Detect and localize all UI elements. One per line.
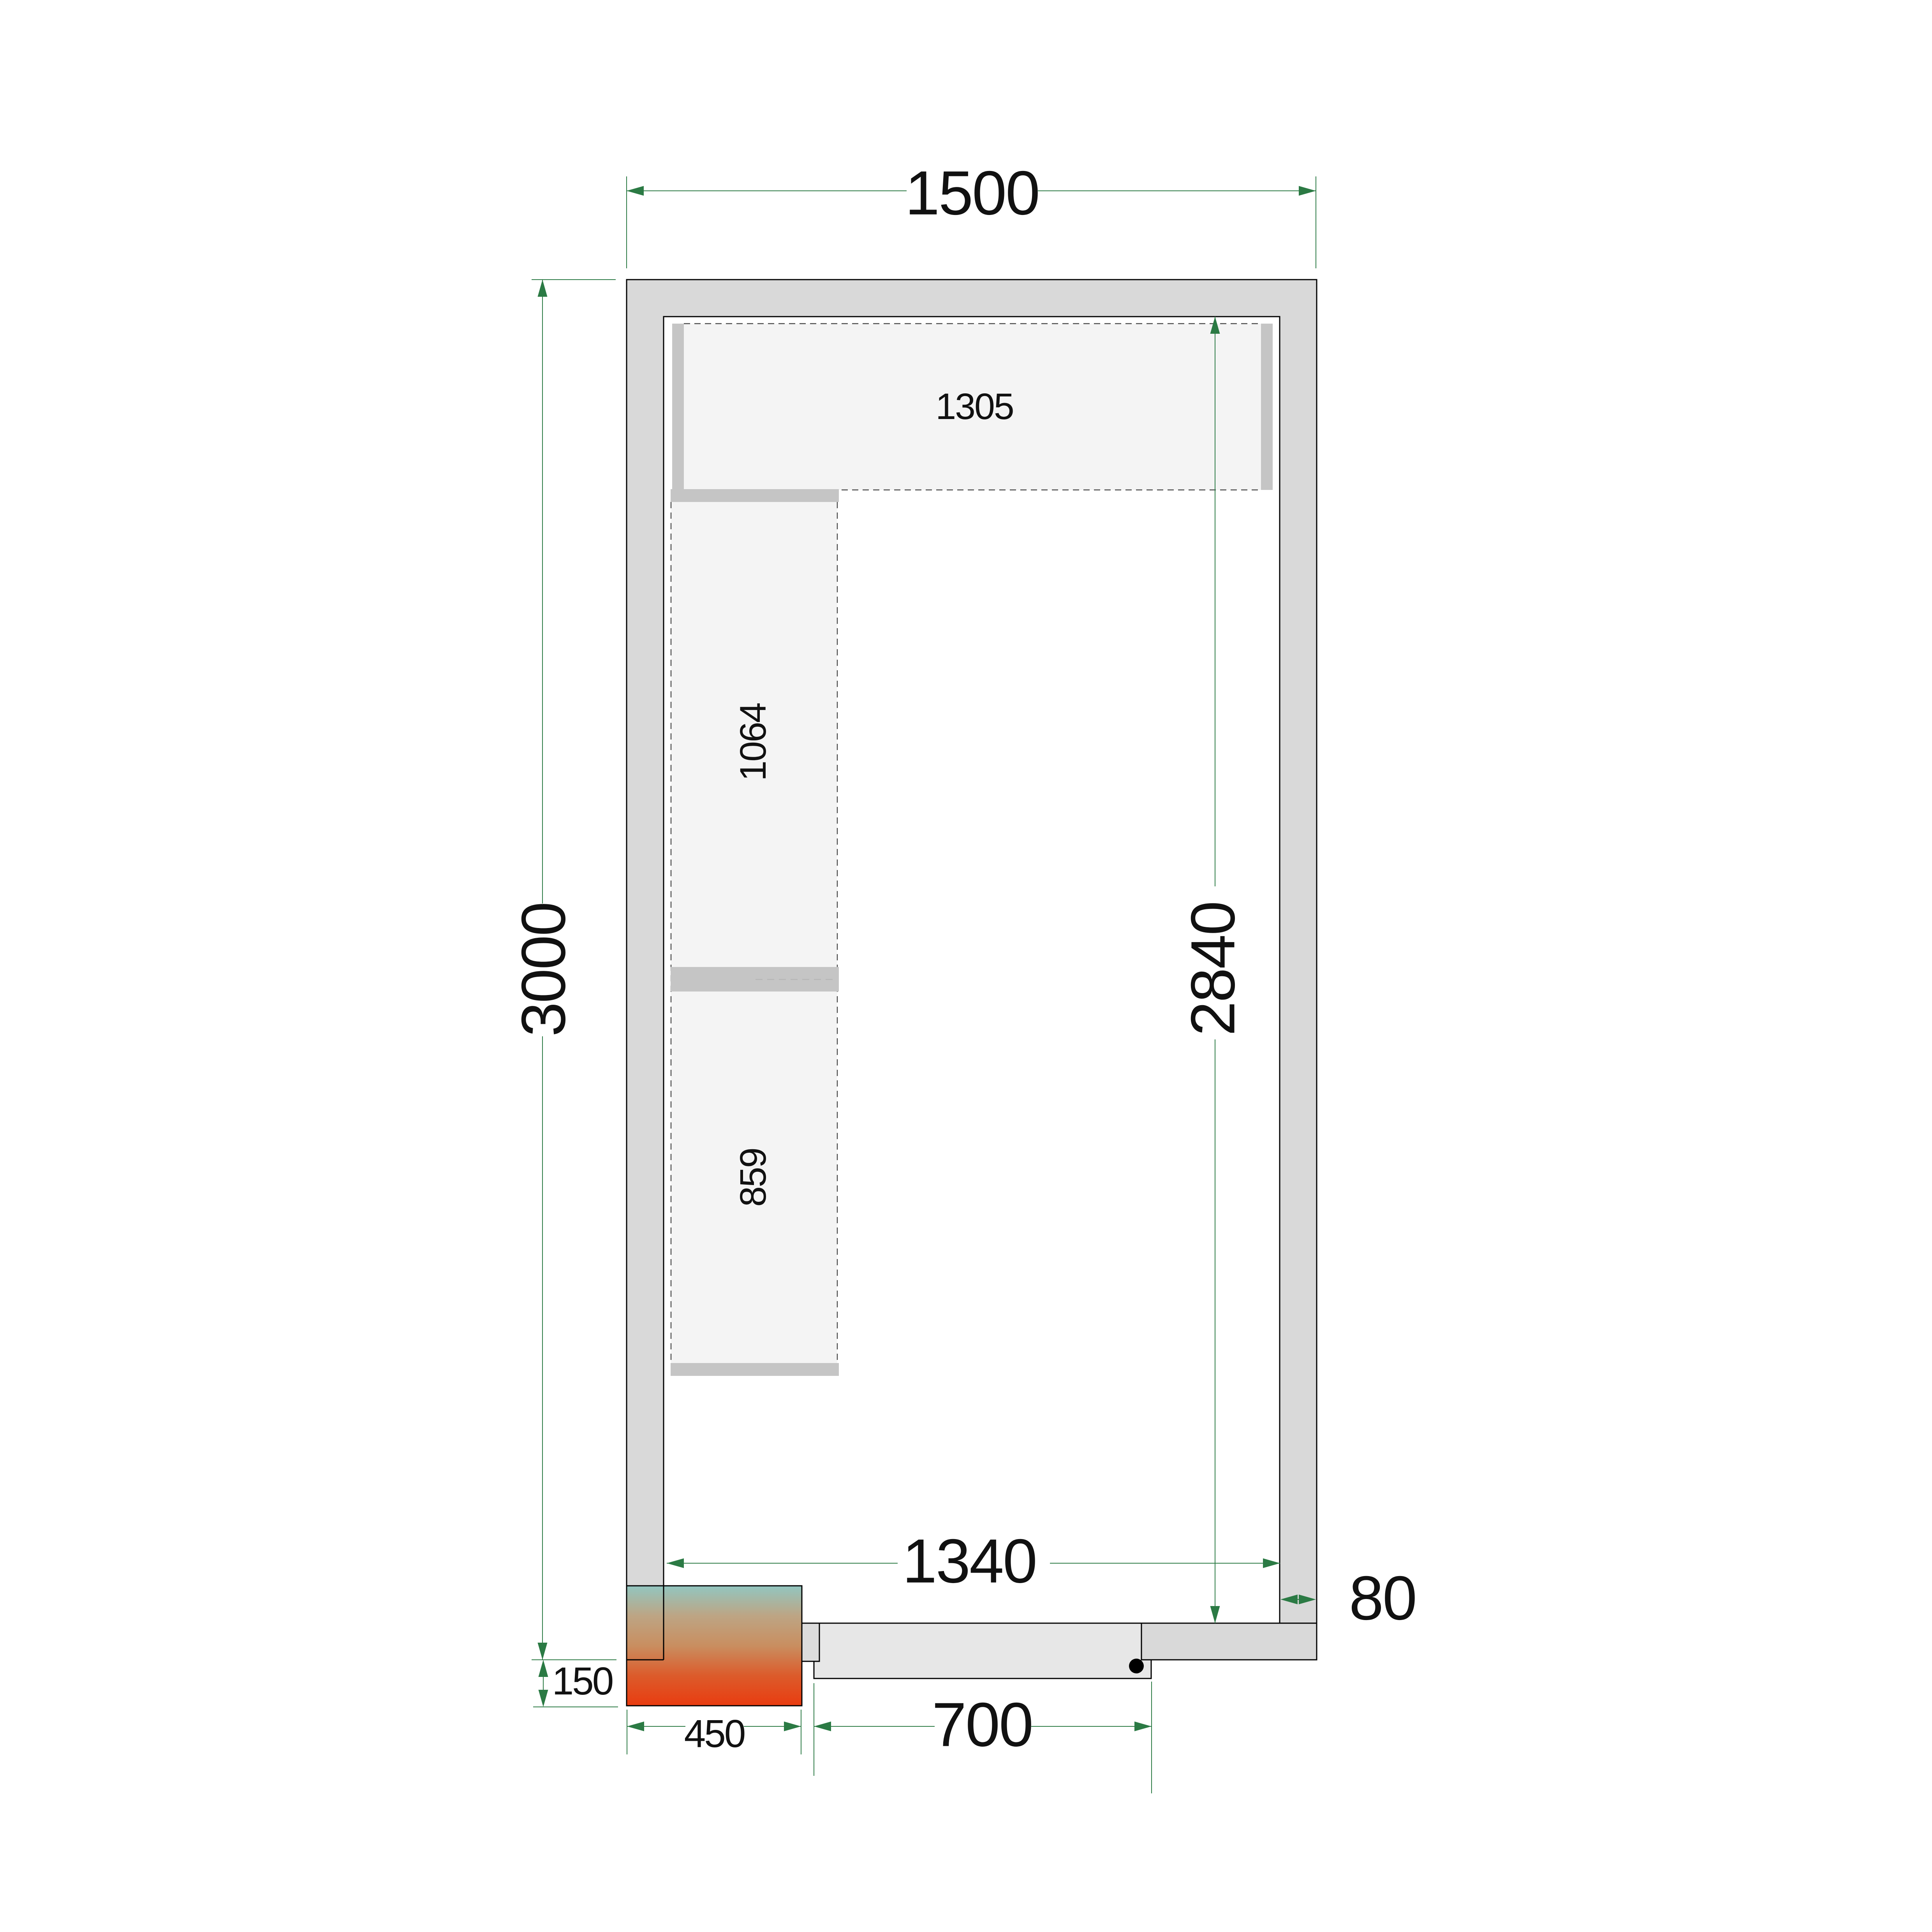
svg-text:80: 80 bbox=[1349, 1563, 1416, 1633]
svg-text:450: 450 bbox=[684, 1712, 745, 1756]
svg-text:1305: 1305 bbox=[935, 386, 1013, 427]
svg-text:700: 700 bbox=[932, 1690, 1032, 1759]
svg-text:1064: 1064 bbox=[733, 703, 774, 781]
svg-text:3000: 3000 bbox=[509, 903, 578, 1037]
svg-text:1340: 1340 bbox=[902, 1526, 1036, 1596]
svg-text:859: 859 bbox=[733, 1148, 774, 1207]
svg-text:1500: 1500 bbox=[905, 158, 1039, 228]
svg-text:150: 150 bbox=[552, 1659, 613, 1703]
svg-text:2840: 2840 bbox=[1178, 902, 1248, 1036]
